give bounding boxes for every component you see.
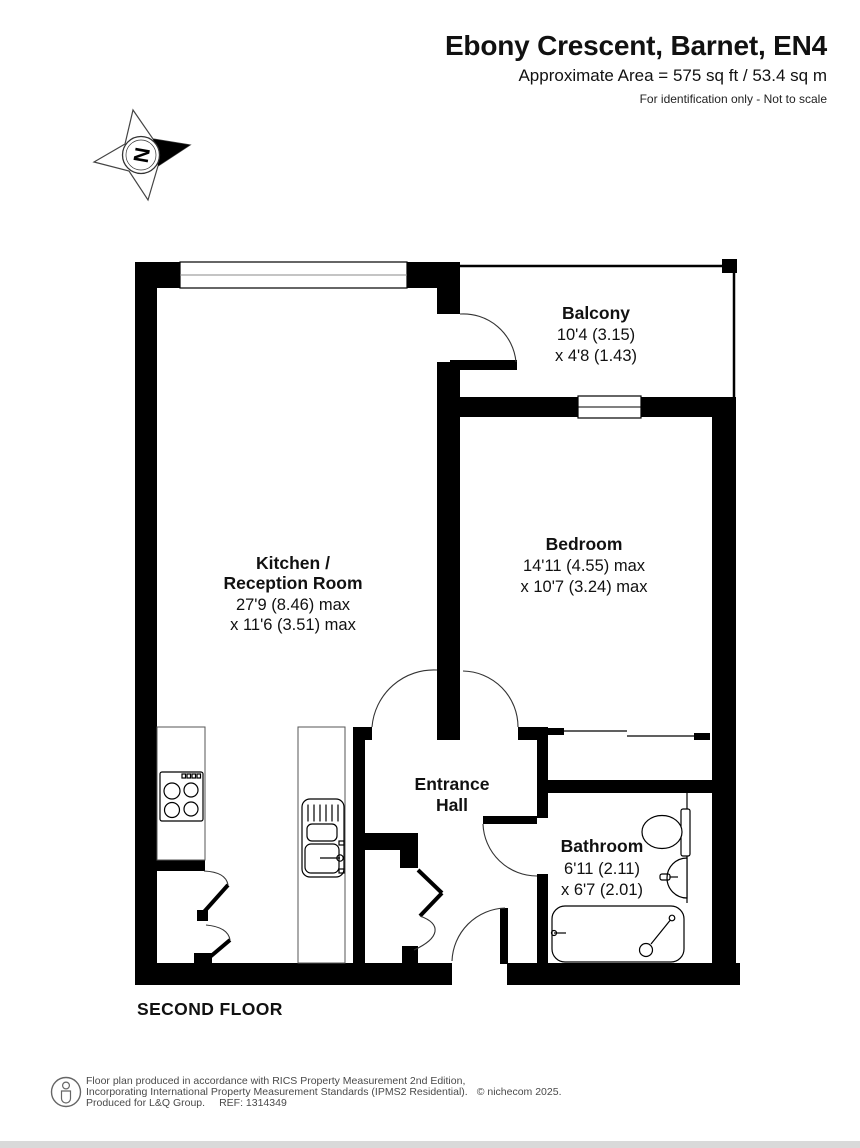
bedroom-hall-door [463,671,518,727]
walls [135,259,740,985]
balcony-name: Balcony [562,303,630,323]
hob [160,772,203,821]
window-bottom-edge [0,1141,860,1148]
person-icon [52,1078,81,1107]
kitchen-hall-door [372,670,437,727]
footer: Floor plan produced in accordance with R… [86,1076,562,1108]
balcony-dim1: 10'4 (3.15) [557,326,635,344]
kitchen-dim1: 27'9 (8.46) max [236,596,351,614]
bathroom-door [483,816,537,876]
entrance-door-leaf [500,908,508,964]
balcony-door-leaf [450,360,517,370]
entrance-hall-label: Entrance Hall [415,774,490,815]
entrance-door [452,908,508,964]
kitchen-name2: Reception Room [223,573,362,593]
floor-label: SECOND FLOOR [137,999,283,1020]
bedroom-hall-door-swing [463,671,518,727]
bedroom-dim1: 14'11 (4.55) max [523,557,646,575]
kitchen-reception-label: Kitchen / Reception Room 27'9 (8.46) max… [223,553,362,634]
wash-basin [660,858,687,898]
kitchen-dim2: x 11'6 (3.51) max [230,616,356,634]
bathroom-dim2: x 6'7 (2.01) [561,881,643,899]
kitchen-hall-door-swing [372,670,437,727]
bathroom-door-leaf [483,816,537,824]
kitchen-window [180,262,407,288]
balcony-dim2: x 4'8 (1.43) [555,347,637,365]
compass: N [94,110,190,200]
hall-cupboard-doors [414,870,442,950]
hall-name2: Hall [436,795,468,815]
floor-plan-canvas: N [0,0,860,1148]
kitchen-sink [302,799,344,877]
bathtub [552,906,685,962]
balcony-door [450,314,517,370]
footer-copyright: © nichecom 2025. [477,1086,562,1098]
wardrobe-sliding-doors [548,728,710,740]
bathroom-label: Bathroom 6'11 (2.11) x 6'7 (2.01) [561,836,644,899]
shower-hinge-dot [669,915,675,921]
bathroom-dim1: 6'11 (2.11) [564,860,640,878]
bedroom-name: Bedroom [546,534,623,554]
bedroom-window [578,396,641,418]
footer-ref: REF: 1314349 [219,1097,287,1109]
entrance-door-swing [452,908,505,961]
footer-line3: Produced for L&Q Group.REF: 1314349 [86,1098,562,1109]
bathroom-name: Bathroom [561,836,644,856]
bedroom-label: Bedroom 14'11 (4.55) max x 10'7 (3.24) m… [521,534,649,596]
bedroom-dim2: x 10'7 (3.24) max [521,578,649,596]
balcony-label: Balcony 10'4 (3.15) x 4'8 (1.43) [555,303,637,365]
hall-name1: Entrance [415,774,490,794]
bathroom-door-swing [483,824,537,876]
footer-produced-for: Produced for L&Q Group. [86,1097,205,1109]
kitchen-name1: Kitchen / [256,553,330,573]
balcony-door-swing [460,314,516,362]
